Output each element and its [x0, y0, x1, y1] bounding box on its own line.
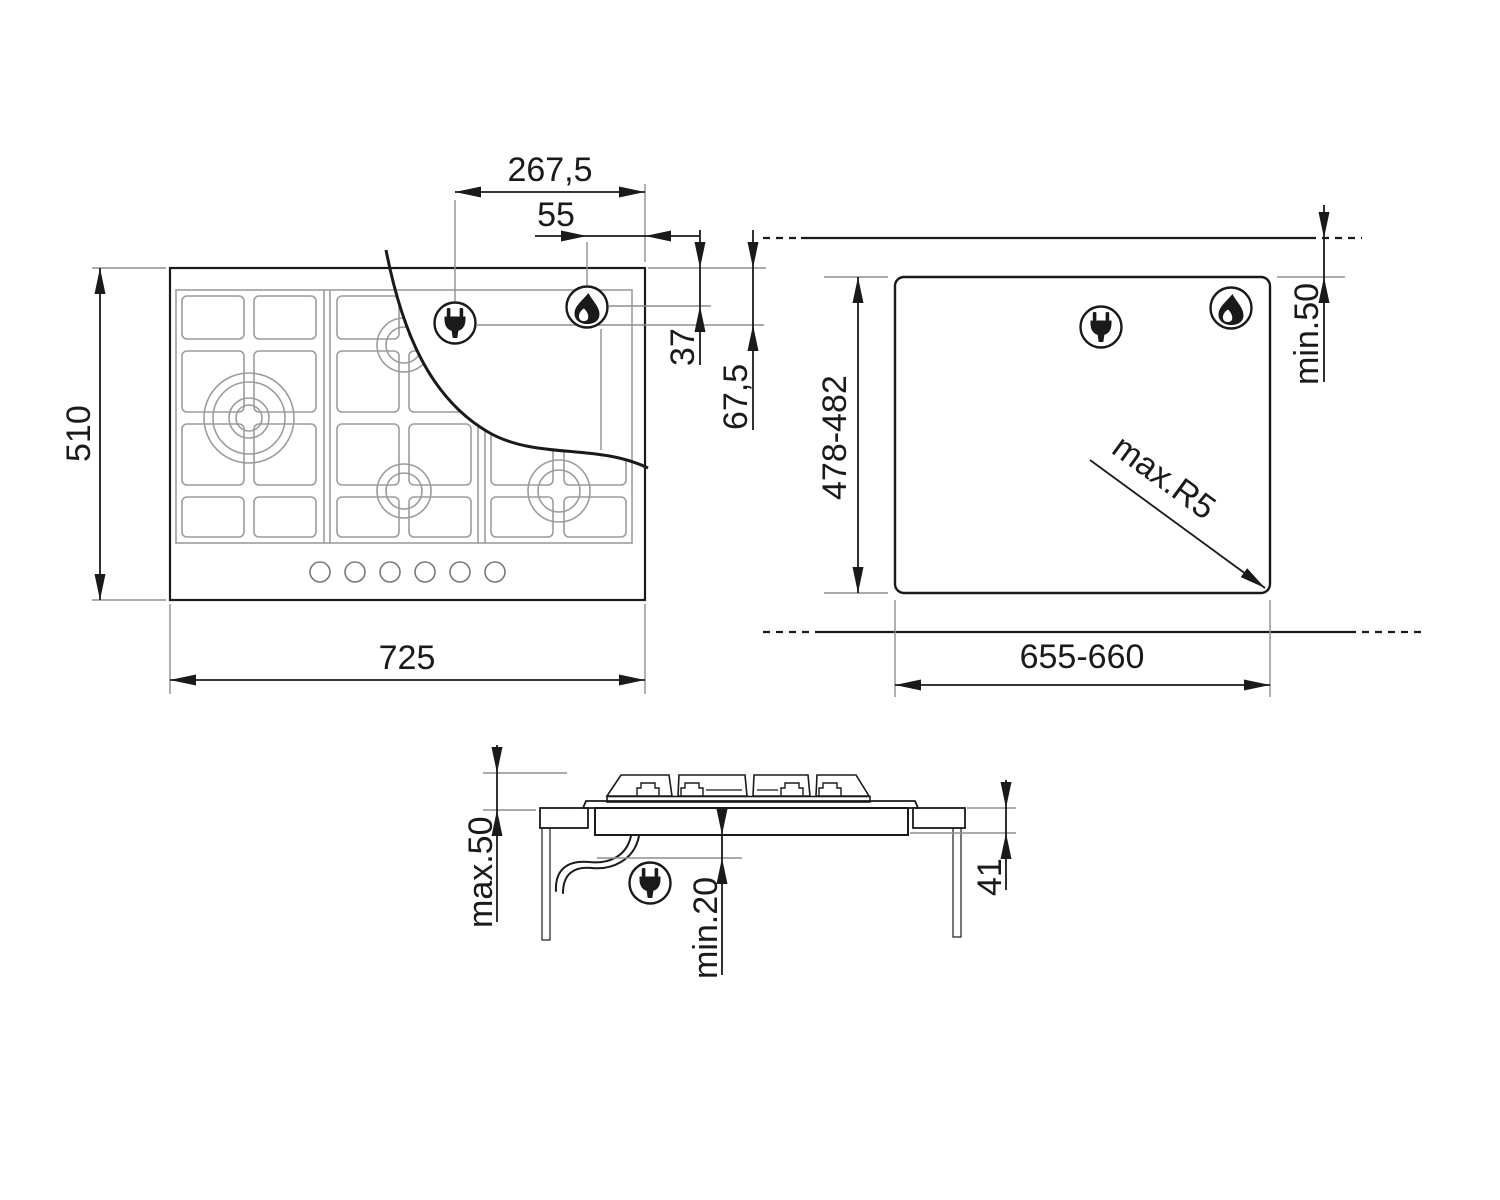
worktop-section-left: [540, 808, 588, 828]
extension-lines-side-view: [483, 773, 1016, 858]
dim-rear-clearance: min.50: [1288, 205, 1330, 385]
dim-recess-depth: 41: [971, 780, 1012, 896]
dim-gas-offset-y: 37: [664, 230, 706, 366]
flame-icon: [567, 287, 608, 328]
dim-cutout-height: 478-482: [816, 277, 864, 593]
dim-label-corner-radius: max.R5: [1105, 428, 1222, 528]
worktop-cutout-view: 478-482 655-660 min.50 max.R5: [763, 205, 1424, 697]
cabinet-panel-right: [953, 828, 961, 937]
dim-label-hob-height: 510: [60, 405, 98, 462]
dim-hob-width: 725: [170, 639, 645, 686]
dim-cutout-width: 655-660: [895, 638, 1270, 691]
dim-label-hob-width: 725: [379, 639, 436, 677]
dim-label-cutout-height: 478-482: [816, 375, 854, 500]
dim-label-electrical-offset-y: 67,5: [717, 364, 755, 430]
dim-label-cutout-width: 655-660: [1020, 638, 1145, 676]
dim-label-gas-offset-x: 55: [537, 196, 575, 234]
dim-clearance-above: max.50: [462, 745, 503, 928]
plug-icon: [435, 303, 476, 344]
dim-label-electrical-offset-x: 267,5: [507, 151, 592, 189]
power-cord: [556, 836, 639, 893]
pan-supports-profile: [607, 775, 870, 802]
plug-icon: [630, 863, 671, 904]
dim-gas-offset-x: 55: [535, 196, 700, 242]
dim-electrical-offset-x: 267,5: [455, 151, 645, 198]
plug-icon: [1081, 307, 1122, 348]
hob-tub: [595, 808, 908, 835]
dim-electrical-offset-y: 67,5: [717, 230, 759, 430]
dim-label-clearance-below: min.20: [687, 877, 725, 979]
cabinet-panel-left: [542, 828, 550, 940]
dim-label-clearance-above: max.50: [462, 817, 500, 929]
flame-icon: [1211, 288, 1252, 329]
dim-label-gas-offset-y: 37: [664, 328, 702, 366]
hob-top-view: 267,5 55 510 725 37 67,5: [60, 151, 766, 694]
dim-label-recess-depth: 41: [971, 858, 1009, 896]
dim-hob-height: 510: [60, 268, 106, 600]
dim-corner-radius: max.R5: [1090, 428, 1268, 593]
worktop-section-right: [913, 808, 965, 828]
side-section-view: max.50 min.20 41: [462, 745, 1016, 979]
dim-label-rear-clearance: min.50: [1288, 283, 1326, 385]
installation-drawing: 267,5 55 510 725 37 67,5: [0, 0, 1500, 1200]
